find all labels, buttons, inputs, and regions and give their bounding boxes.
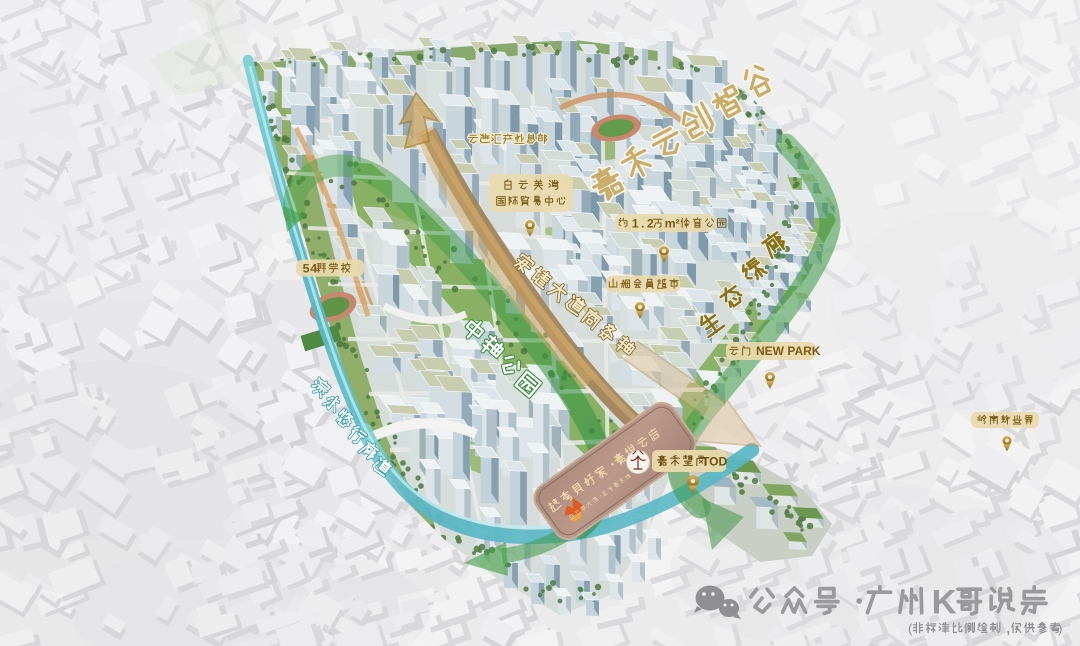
svg-text:m: m (665, 217, 676, 231)
svg-text:2: 2 (647, 217, 654, 231)
svg-text:1: 1 (632, 217, 639, 231)
svg-text:): ) (1058, 621, 1062, 636)
svg-text:²: ² (676, 217, 680, 231)
svg-text:NEW PARK: NEW PARK (756, 344, 821, 358)
svg-text:,: , (1006, 621, 1010, 636)
svg-text:.: . (641, 217, 644, 231)
svg-text:5: 5 (303, 262, 310, 276)
svg-text:4: 4 (310, 262, 317, 276)
svg-text:TOD: TOD (702, 455, 727, 469)
svg-text:(: ( (908, 621, 913, 636)
svg-text:K: K (932, 583, 957, 621)
